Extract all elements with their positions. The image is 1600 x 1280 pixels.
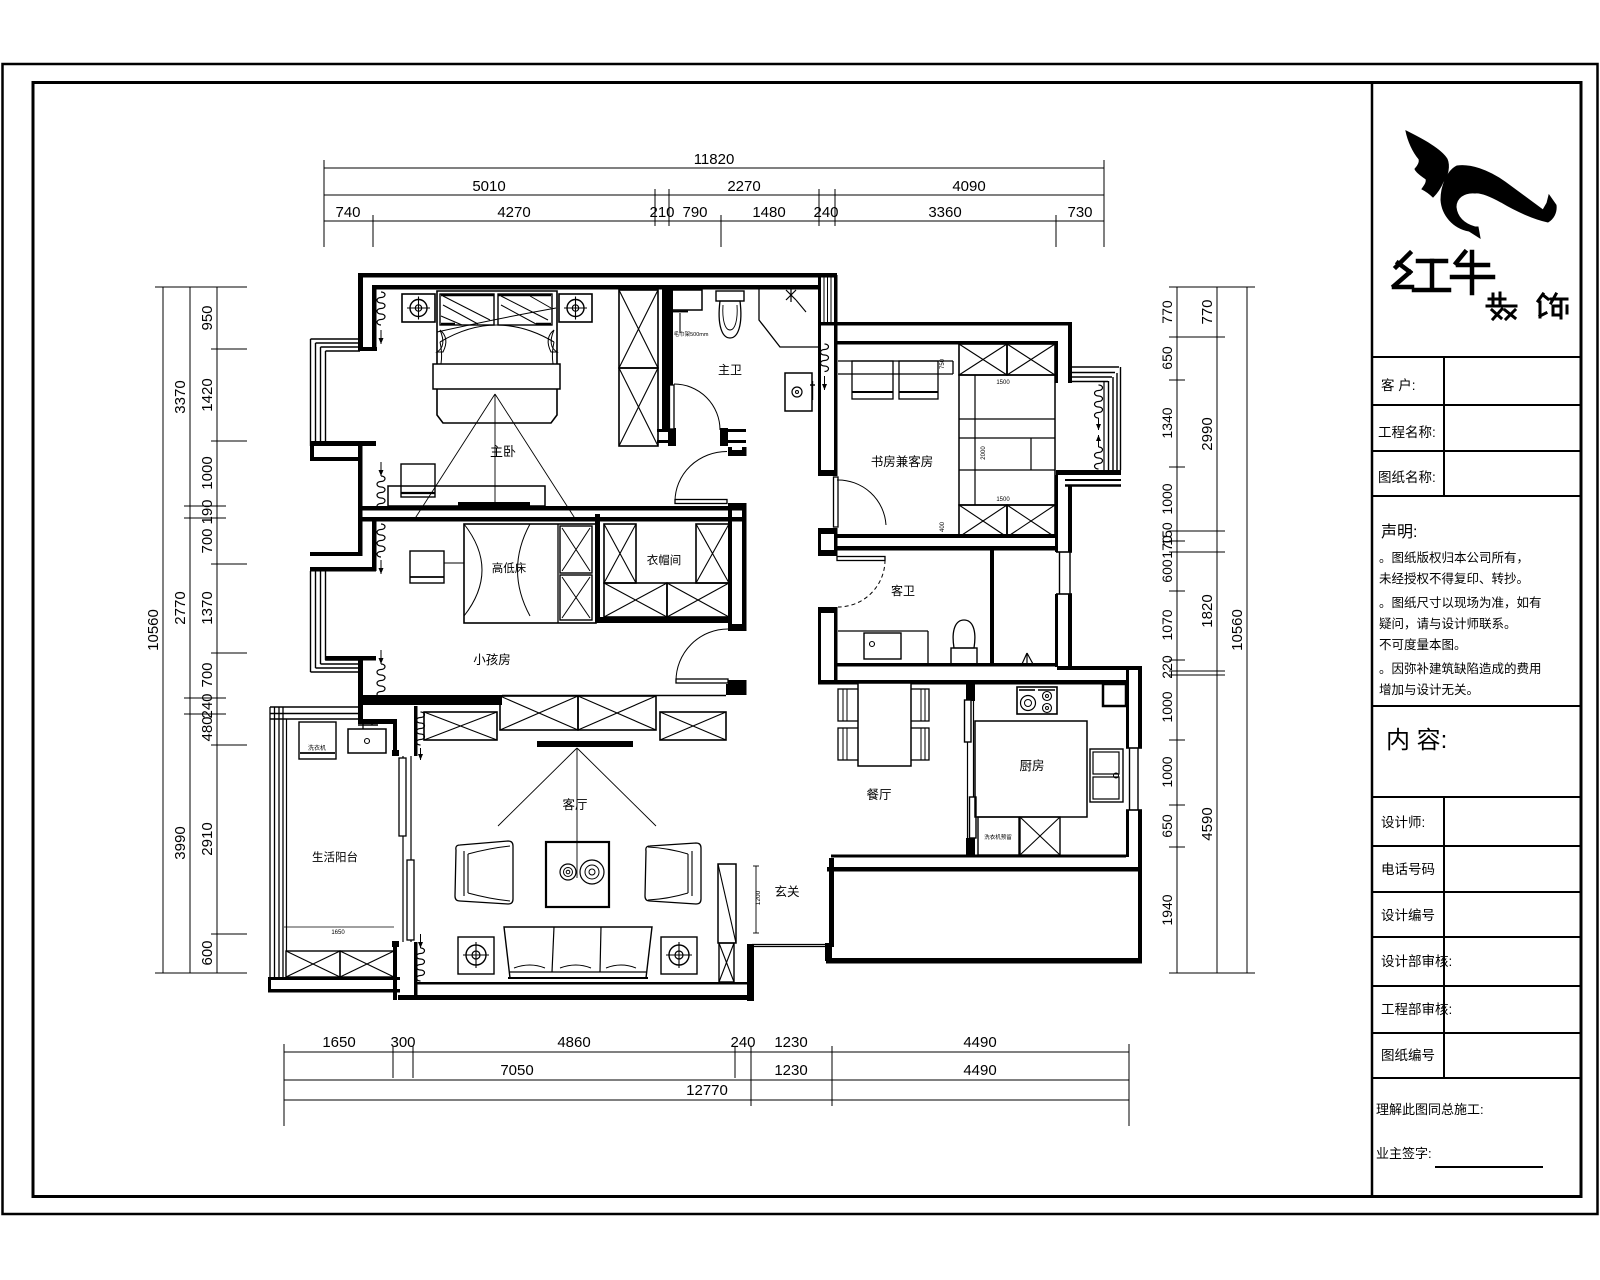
svg-text:11820: 11820 bbox=[694, 151, 735, 168]
svg-text:400: 400 bbox=[940, 521, 946, 532]
svg-text:1650: 1650 bbox=[322, 1034, 355, 1051]
svg-text:生活阳台: 生活阳台 bbox=[312, 850, 358, 864]
svg-text:主卫: 主卫 bbox=[718, 363, 742, 377]
svg-text:设计师:: 设计师: bbox=[1381, 815, 1425, 830]
svg-text:2990: 2990 bbox=[1199, 417, 1216, 450]
svg-text:工程名称:: 工程名称: bbox=[1378, 425, 1436, 440]
svg-text:3370: 3370 bbox=[172, 380, 189, 413]
svg-text:1940: 1940 bbox=[1159, 894, 1175, 925]
svg-text:220: 220 bbox=[1159, 655, 1175, 679]
svg-text:工程部审核:: 工程部审核: bbox=[1381, 1002, 1452, 1017]
svg-text:4590: 4590 bbox=[1199, 807, 1216, 840]
svg-text:高低床: 高低床 bbox=[492, 561, 527, 575]
svg-text:洗衣机预留: 洗衣机预留 bbox=[984, 833, 1012, 841]
svg-text:业主签字:: 业主签字: bbox=[1376, 1146, 1432, 1161]
svg-text:不可度量本图。: 不可度量本图。 bbox=[1379, 637, 1467, 652]
svg-text:4090: 4090 bbox=[952, 178, 985, 195]
svg-text:1070: 1070 bbox=[1159, 609, 1175, 640]
svg-text:图纸名称:: 图纸名称: bbox=[1378, 470, 1436, 485]
svg-text:600: 600 bbox=[199, 940, 216, 965]
svg-text:5010: 5010 bbox=[472, 178, 505, 195]
svg-text:240: 240 bbox=[730, 1034, 755, 1051]
svg-text:。图纸版权归本公司所有，: 。图纸版权归本公司所有， bbox=[1379, 550, 1529, 565]
svg-text:240: 240 bbox=[199, 693, 216, 718]
svg-text:洗衣机: 洗衣机 bbox=[308, 744, 326, 752]
svg-text:4270: 4270 bbox=[497, 204, 530, 221]
svg-text:。因弥补建筑缺陷造成的费用: 。因弥补建筑缺陷造成的费用 bbox=[1379, 661, 1542, 676]
svg-text:疑问，请与设计师联系。: 疑问，请与设计师联系。 bbox=[1379, 616, 1517, 631]
svg-text:10560: 10560 bbox=[1229, 609, 1246, 651]
svg-text:210: 210 bbox=[649, 204, 674, 221]
svg-text:玄关: 玄关 bbox=[774, 884, 799, 899]
svg-text:1000: 1000 bbox=[1159, 756, 1175, 787]
svg-text:客厅: 客厅 bbox=[562, 797, 587, 812]
svg-text:客卫: 客卫 bbox=[891, 583, 915, 598]
svg-text:理解此图同总施工:: 理解此图同总施工: bbox=[1376, 1102, 1484, 1117]
svg-text:730: 730 bbox=[1067, 204, 1092, 221]
svg-text:7050: 7050 bbox=[500, 1062, 533, 1079]
svg-text:毛巾架500mm: 毛巾架500mm bbox=[674, 330, 709, 338]
svg-text:700: 700 bbox=[199, 662, 216, 687]
svg-text:小孩房: 小孩房 bbox=[473, 652, 511, 667]
svg-text:2270: 2270 bbox=[727, 178, 760, 195]
svg-text:3990: 3990 bbox=[172, 826, 189, 859]
svg-text:2910: 2910 bbox=[199, 822, 216, 855]
svg-text:厨房: 厨房 bbox=[1019, 758, 1044, 773]
svg-text:1820: 1820 bbox=[1199, 594, 1216, 627]
svg-text:1200: 1200 bbox=[755, 890, 762, 905]
svg-text:240: 240 bbox=[813, 204, 838, 221]
svg-text:1340: 1340 bbox=[1159, 407, 1175, 438]
svg-text:主卧: 主卧 bbox=[490, 444, 516, 459]
svg-text:1000: 1000 bbox=[1159, 483, 1175, 514]
svg-text:衣帽间: 衣帽间 bbox=[647, 553, 682, 567]
svg-text:1480: 1480 bbox=[752, 204, 785, 221]
svg-text:10560: 10560 bbox=[145, 609, 162, 651]
svg-text:2000: 2000 bbox=[981, 446, 987, 460]
svg-text:设计部审核:: 设计部审核: bbox=[1381, 954, 1452, 969]
svg-text:4490: 4490 bbox=[963, 1034, 996, 1051]
svg-text:1420: 1420 bbox=[199, 378, 216, 411]
svg-text:950: 950 bbox=[199, 305, 216, 330]
svg-text:1000: 1000 bbox=[1159, 691, 1175, 722]
svg-text:170: 170 bbox=[1159, 535, 1175, 559]
svg-text:书房兼客房: 书房兼客房 bbox=[871, 454, 934, 469]
svg-text:650: 650 bbox=[1159, 814, 1175, 838]
svg-text:客 户:: 客 户: bbox=[1381, 377, 1416, 393]
svg-text:电话号码: 电话号码 bbox=[1381, 862, 1435, 877]
svg-text:1230: 1230 bbox=[774, 1062, 807, 1079]
svg-text:650: 650 bbox=[1159, 346, 1175, 370]
svg-text:内 容:: 内 容: bbox=[1386, 727, 1447, 754]
svg-text:190: 190 bbox=[199, 499, 216, 524]
svg-text:600: 600 bbox=[1159, 559, 1175, 583]
svg-text:740: 740 bbox=[335, 204, 360, 221]
svg-text:1500: 1500 bbox=[996, 497, 1010, 503]
svg-text:1500: 1500 bbox=[996, 380, 1010, 386]
svg-text:1230: 1230 bbox=[774, 1034, 807, 1051]
svg-text:。图纸尺寸以现场为准，如有: 。图纸尺寸以现场为准，如有 bbox=[1379, 595, 1542, 610]
svg-text:790: 790 bbox=[682, 204, 707, 221]
svg-text:未经授权不得复印、转抄。: 未经授权不得复印、转抄。 bbox=[1379, 571, 1529, 586]
svg-text:1000: 1000 bbox=[199, 456, 216, 489]
svg-text:图纸编号: 图纸编号 bbox=[1381, 1048, 1435, 1063]
svg-text:1650: 1650 bbox=[331, 930, 345, 936]
svg-text:声明:: 声明: bbox=[1381, 523, 1417, 541]
svg-text:3360: 3360 bbox=[928, 204, 961, 221]
svg-text:1370: 1370 bbox=[199, 591, 216, 624]
svg-text:餐厅: 餐厅 bbox=[866, 787, 891, 802]
svg-text:4860: 4860 bbox=[557, 1034, 590, 1051]
svg-text:设计编号: 设计编号 bbox=[1381, 908, 1435, 923]
svg-text:700: 700 bbox=[199, 528, 216, 553]
svg-text:300: 300 bbox=[390, 1034, 415, 1051]
svg-text:12770: 12770 bbox=[686, 1082, 728, 1099]
svg-text:增加与设计无关。: 增加与设计无关。 bbox=[1379, 682, 1479, 697]
svg-text:750: 750 bbox=[940, 358, 946, 369]
svg-text:2770: 2770 bbox=[172, 591, 189, 624]
svg-text:4490: 4490 bbox=[963, 1062, 996, 1079]
svg-text:770: 770 bbox=[1159, 300, 1175, 324]
svg-text:480: 480 bbox=[199, 716, 216, 741]
svg-text:770: 770 bbox=[1199, 299, 1216, 324]
